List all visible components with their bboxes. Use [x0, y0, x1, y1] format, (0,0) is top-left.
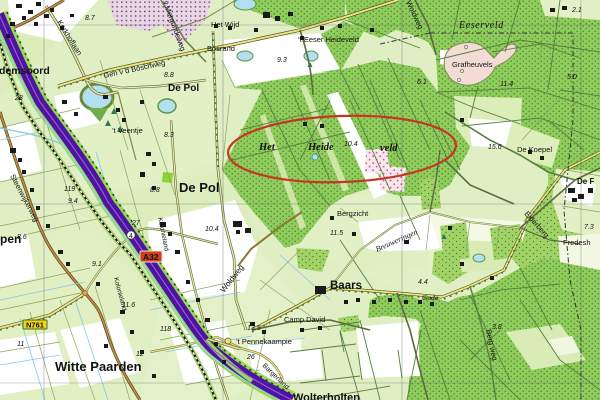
svg-text:7.3: 7.3 [584, 224, 594, 231]
svg-text:27: 27 [131, 220, 141, 227]
svg-text:6.1: 6.1 [417, 79, 427, 86]
svg-text:11.6: 11.6 [122, 302, 135, 309]
svg-text:Fredesh: Fredesh [563, 238, 591, 247]
svg-text:4: 4 [129, 233, 133, 240]
svg-text:9.1: 9.1 [92, 261, 102, 268]
svg-text:8.7: 8.7 [85, 15, 96, 22]
svg-text:Bergzicht: Bergzicht [337, 209, 369, 218]
svg-text:11.5: 11.5 [330, 230, 343, 237]
svg-text:118: 118 [160, 326, 171, 333]
svg-text:8.8: 8.8 [164, 72, 174, 79]
svg-text:N761: N761 [26, 321, 44, 330]
svg-text:Baars: Baars [330, 280, 362, 292]
svg-text:Witte Paarden: Witte Paarden [55, 359, 142, 374]
svg-text:12: 12 [136, 351, 144, 358]
svg-text:5.0: 5.0 [567, 74, 577, 81]
svg-text:De Koepel: De Koepel [517, 145, 552, 154]
svg-text:Het: Het [258, 142, 276, 153]
svg-text:De Pol: De Pol [168, 83, 199, 94]
svg-text:13.5: 13.5 [247, 325, 261, 332]
svg-text:8.6: 8.6 [17, 234, 27, 241]
svg-text:119: 119 [64, 186, 75, 193]
svg-text:9.3: 9.3 [277, 57, 287, 64]
svg-text:Bosrand: Bosrand [207, 44, 235, 53]
svg-text:8.3: 8.3 [164, 132, 174, 139]
svg-text:Wolterholten: Wolterholten [293, 392, 360, 400]
svg-text:De F: De F [577, 177, 594, 186]
svg-text:2.1: 2.1 [571, 7, 582, 14]
svg-text:15.6: 15.6 [488, 144, 502, 151]
svg-text:veld: veld [380, 143, 398, 154]
svg-text:11: 11 [17, 341, 24, 348]
svg-text:3.8: 3.8 [492, 324, 502, 331]
svg-text:Eeserveld: Eeserveld [458, 20, 504, 31]
svg-text:Heide: Heide [307, 142, 334, 153]
svg-text:’t Eeser Heideveld: ’t Eeser Heideveld [298, 35, 359, 44]
svg-text:Grafheuvels: Grafheuvels [452, 60, 493, 69]
svg-text:10.4: 10.4 [344, 141, 358, 148]
svg-text:demsoord: demsoord [0, 65, 50, 77]
svg-text:26: 26 [246, 354, 255, 361]
svg-text:Camp David: Camp David [284, 315, 325, 324]
svg-text:28: 28 [14, 95, 23, 102]
svg-text:10.4: 10.4 [205, 226, 219, 233]
svg-text:De Pol: De Pol [179, 180, 219, 195]
svg-text:8.8: 8.8 [150, 187, 160, 194]
svg-text:Het Wijd: Het Wijd [211, 20, 239, 29]
svg-text:Gode: Gode [422, 293, 439, 302]
svg-text:’t Pennekaampie: ’t Pennekaampie [236, 337, 292, 346]
svg-text:11.4: 11.4 [500, 81, 513, 88]
svg-text:’t Veentje: ’t Veentje [112, 126, 143, 135]
svg-text:4.4: 4.4 [418, 279, 428, 286]
svg-text:9.4: 9.4 [68, 198, 78, 205]
svg-text:A32: A32 [143, 252, 159, 262]
